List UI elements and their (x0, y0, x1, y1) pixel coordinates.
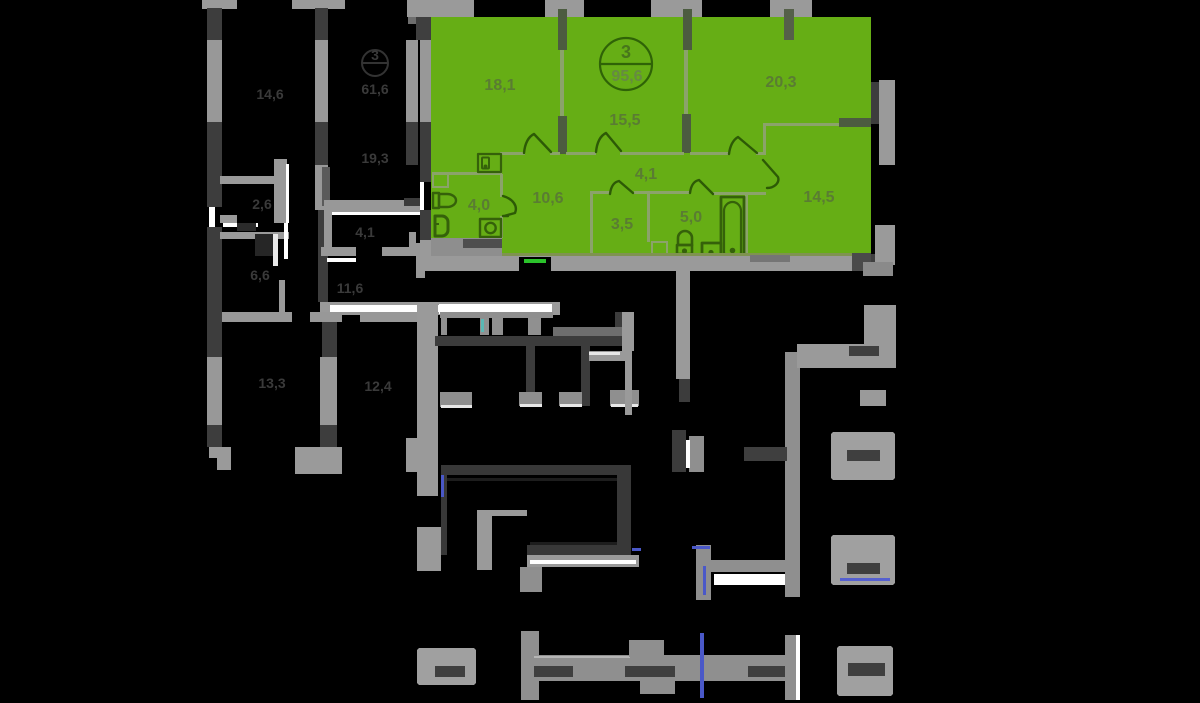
svg-text:95,6: 95,6 (611, 68, 642, 85)
svg-text:11,6: 11,6 (337, 280, 364, 296)
svg-text:3,5: 3,5 (611, 216, 633, 233)
svg-text:14,5: 14,5 (803, 189, 834, 206)
svg-text:2,6: 2,6 (252, 196, 272, 212)
svg-text:3: 3 (621, 42, 631, 62)
svg-text:13,3: 13,3 (258, 375, 285, 391)
svg-text:5,0: 5,0 (680, 209, 702, 226)
svg-text:18,1: 18,1 (484, 77, 515, 94)
svg-text:14,6: 14,6 (256, 86, 283, 102)
svg-text:61,6: 61,6 (361, 81, 388, 97)
svg-text:15,5: 15,5 (609, 112, 640, 129)
svg-text:6,6: 6,6 (250, 267, 270, 283)
svg-text:19,3: 19,3 (361, 150, 388, 166)
svg-text:20,3: 20,3 (765, 74, 796, 91)
svg-text:3: 3 (371, 47, 379, 63)
svg-text:10,6: 10,6 (532, 190, 563, 207)
svg-text:4,1: 4,1 (355, 224, 375, 240)
svg-text:4,1: 4,1 (635, 166, 657, 183)
svg-text:4,0: 4,0 (468, 197, 490, 214)
svg-text:12,4: 12,4 (364, 378, 391, 394)
